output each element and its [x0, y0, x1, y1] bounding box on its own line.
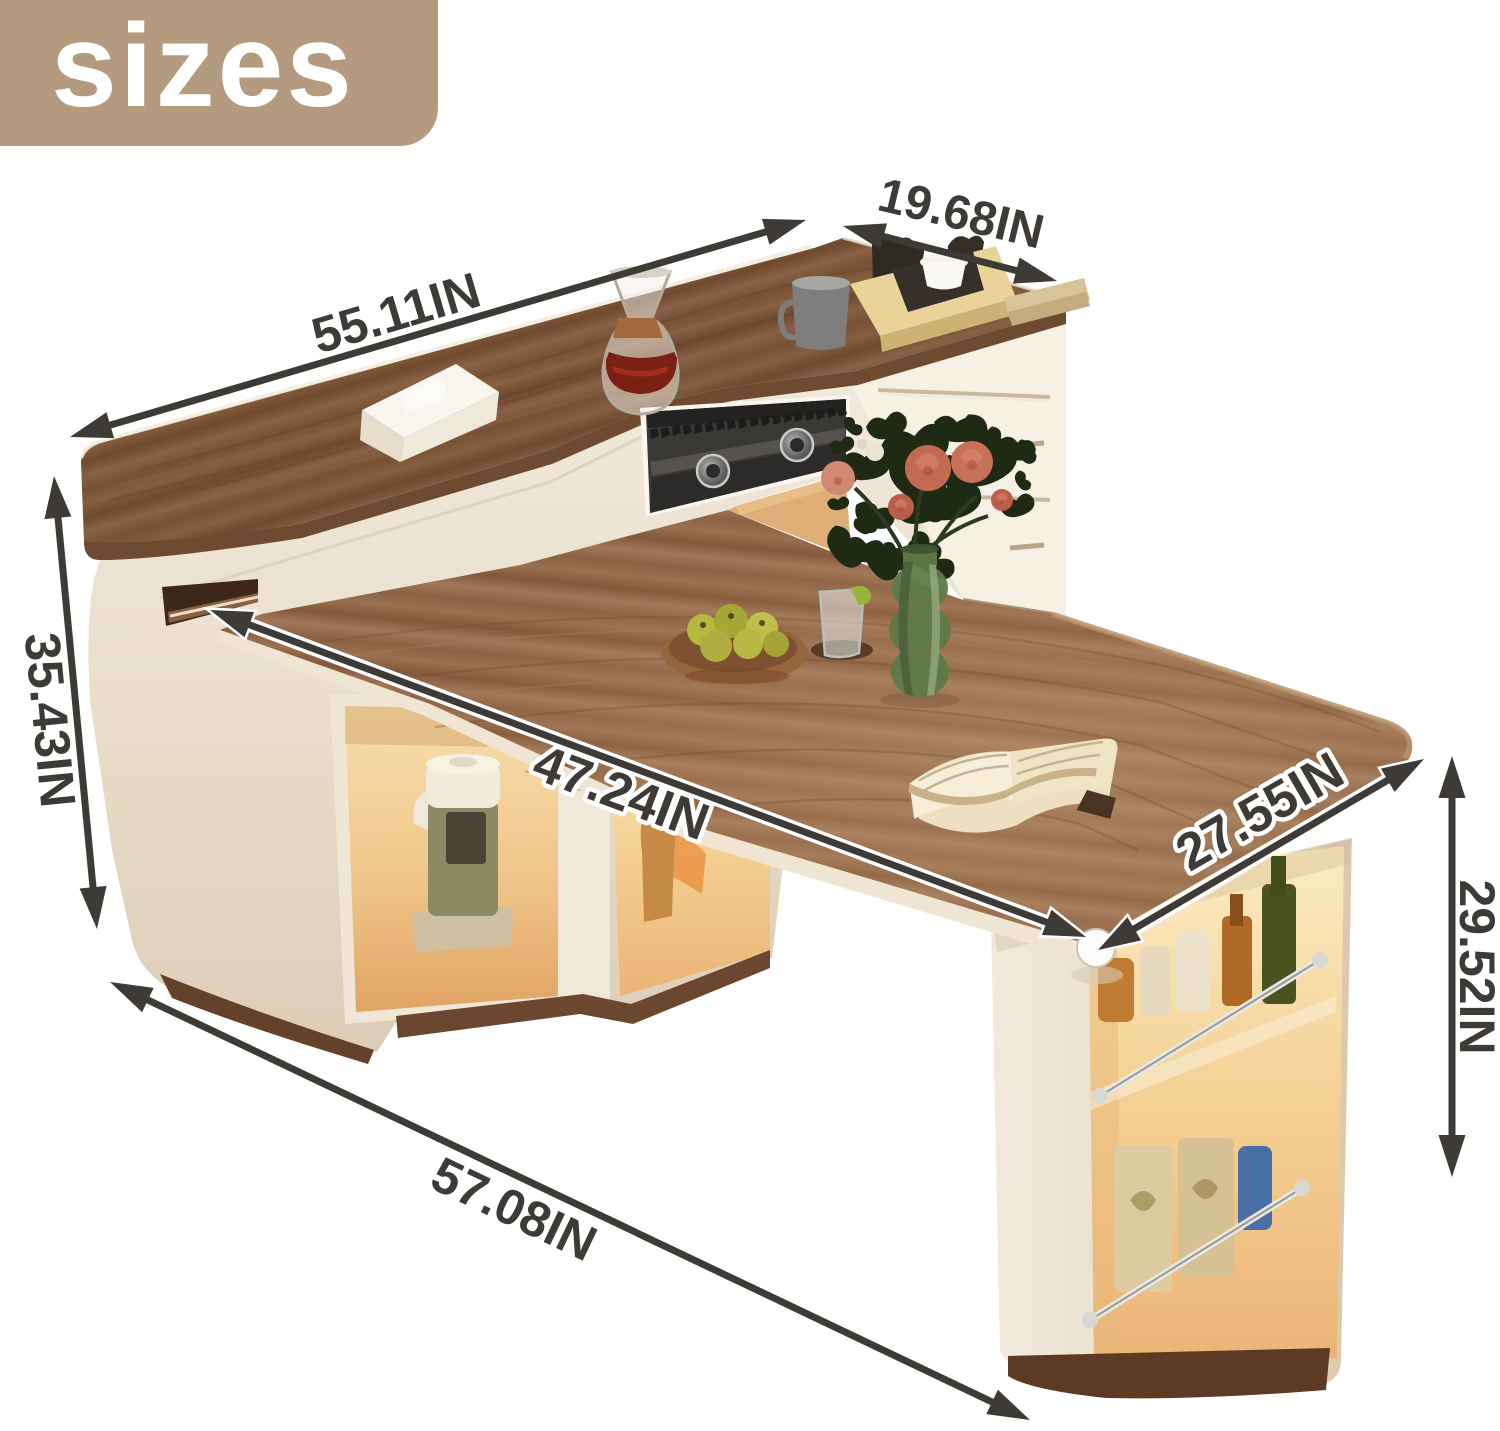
svg-text:29.52IN: 29.52IN — [1449, 879, 1500, 1054]
svg-text:sizes: sizes — [51, 0, 355, 132]
